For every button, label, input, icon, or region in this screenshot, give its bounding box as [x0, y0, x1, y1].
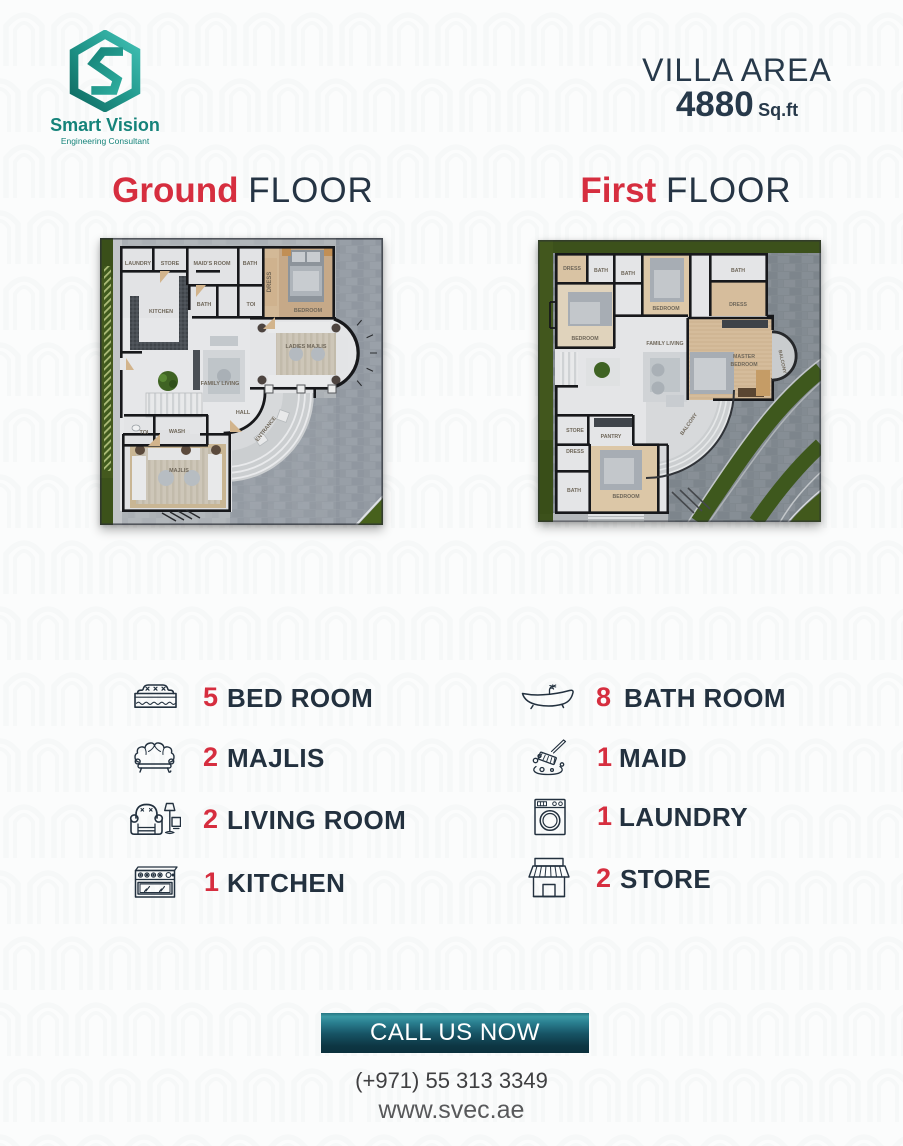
- svg-text:MASTER: MASTER: [733, 354, 755, 360]
- svg-text:FAMILY LIVING: FAMILY LIVING: [201, 381, 240, 387]
- svg-text:LAUNDRY: LAUNDRY: [125, 261, 152, 267]
- svg-text:BEDROOM: BEDROOM: [730, 362, 757, 368]
- svg-text:BATH: BATH: [243, 261, 258, 267]
- svg-text:BATH: BATH: [731, 268, 745, 274]
- svg-text:BATH: BATH: [594, 268, 608, 274]
- svg-text:TOI: TOI: [140, 430, 149, 436]
- svg-text:KITCHEN: KITCHEN: [149, 309, 173, 315]
- svg-text:BEDROOM: BEDROOM: [612, 494, 639, 500]
- svg-text:DRESS: DRESS: [566, 449, 584, 455]
- svg-text:PANTRY: PANTRY: [601, 434, 622, 440]
- svg-text:TOI: TOI: [247, 302, 256, 308]
- svg-text:BEDROOM: BEDROOM: [571, 336, 598, 342]
- svg-text:BATH: BATH: [621, 271, 635, 277]
- svg-text:DRESS: DRESS: [267, 272, 273, 293]
- svg-text:BATH: BATH: [197, 302, 212, 308]
- svg-text:STORE: STORE: [566, 428, 584, 434]
- svg-text:FAMILY LIVING: FAMILY LIVING: [646, 341, 683, 347]
- svg-text:DRESS: DRESS: [563, 266, 581, 272]
- svg-text:MAID'S ROOM: MAID'S ROOM: [194, 261, 231, 267]
- svg-text:BEDROOM: BEDROOM: [652, 306, 679, 312]
- svg-text:WASH: WASH: [169, 429, 185, 435]
- svg-text:LADIES MAJLIS: LADIES MAJLIS: [285, 344, 326, 350]
- svg-text:BEDROOM: BEDROOM: [294, 308, 323, 314]
- svg-text:HALL: HALL: [236, 410, 251, 416]
- svg-text:BATH: BATH: [567, 488, 581, 494]
- svg-text:DRESS: DRESS: [729, 302, 747, 308]
- svg-text:MAJLIS: MAJLIS: [169, 468, 189, 474]
- svg-text:STORE: STORE: [161, 261, 180, 267]
